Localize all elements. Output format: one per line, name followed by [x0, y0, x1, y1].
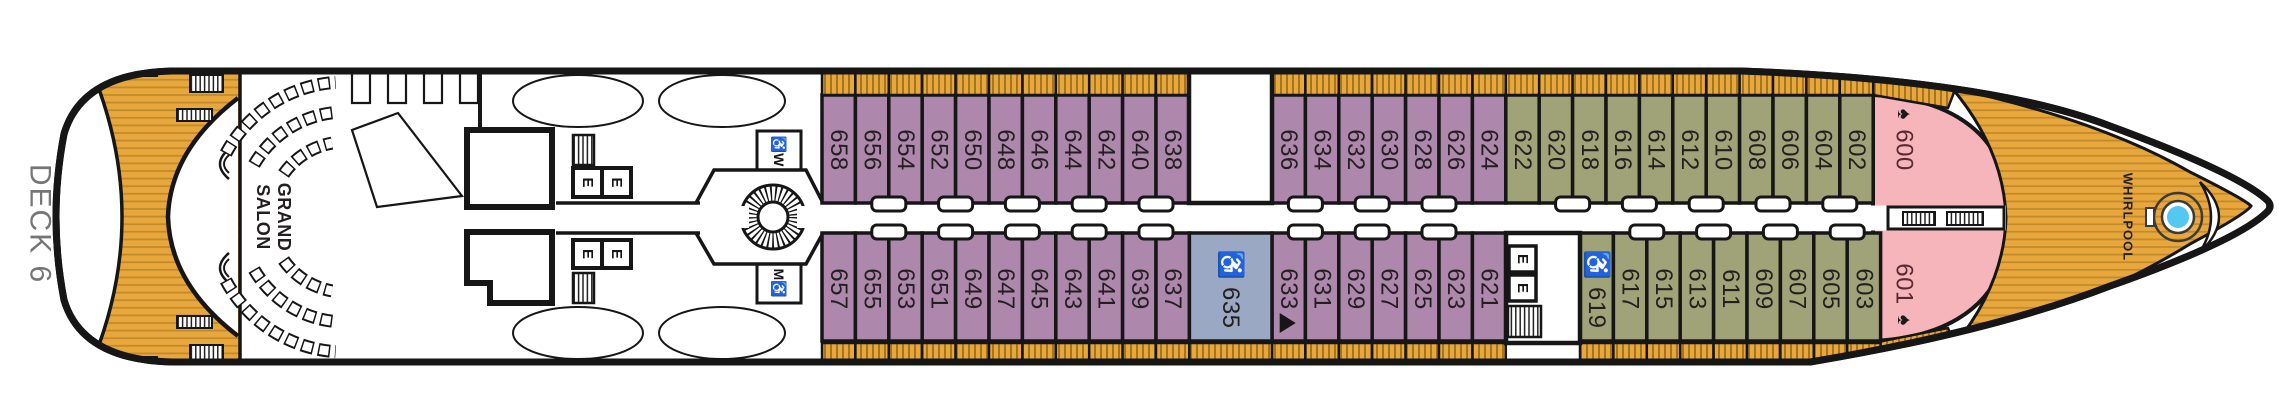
- lifeboat: [659, 307, 785, 359]
- cabin-number: 632: [1342, 129, 1369, 171]
- lifeboat: [659, 75, 785, 127]
- elevator-label: E: [1514, 283, 1531, 293]
- cabin-number: 655: [859, 268, 886, 310]
- cabin-veranda: [1089, 72, 1122, 95]
- cabin-604[interactable]: 604: [1806, 72, 1839, 203]
- lifeboat: [513, 75, 643, 127]
- cabin-number: 657: [825, 268, 852, 310]
- cabin-640[interactable]: 640: [1123, 72, 1156, 203]
- cabin-number: 601: [1891, 263, 1918, 305]
- cabin-door-alcove: [872, 225, 906, 239]
- cabin-635[interactable]: ♿ 635: [1189, 233, 1272, 366]
- cabin-number: 640: [1126, 129, 1153, 171]
- cabin-653[interactable]: 653: [889, 233, 922, 366]
- cabin-number: 636: [1275, 129, 1302, 171]
- cabin-door-alcove: [1622, 197, 1656, 211]
- cabin-door-alcove: [872, 197, 906, 211]
- cabin-door-alcove: [939, 197, 973, 211]
- cabin-618[interactable]: 618: [1573, 72, 1606, 203]
- stairs-icon: [573, 273, 594, 303]
- cabin-door-alcove: [1422, 225, 1456, 239]
- cabin-number: 624: [1476, 129, 1503, 171]
- elevator-label: E: [608, 177, 625, 187]
- cabin-603[interactable]: 603: [1847, 233, 1880, 366]
- cabin-veranda: [922, 72, 955, 95]
- cabin-637[interactable]: 637: [1156, 233, 1189, 366]
- cabin-number: 646: [1026, 129, 1053, 171]
- cabin-number: 654: [892, 129, 919, 171]
- cabin-veranda: [889, 72, 922, 95]
- stairs-icon: [177, 316, 212, 328]
- cabin-door-alcove: [1355, 225, 1389, 239]
- cabin-number: 628: [1409, 129, 1436, 171]
- cabin-veranda: [822, 72, 855, 95]
- cabin-door-alcove: [1005, 197, 1039, 211]
- cabin-door-alcove: [1556, 197, 1590, 211]
- stairs-icon: [1508, 306, 1541, 337]
- cabin-658[interactable]: 658: [822, 72, 855, 203]
- cabin-number: 653: [892, 268, 919, 310]
- cabin-veranda: [1056, 72, 1089, 95]
- cabin-629[interactable]: 629: [1339, 233, 1372, 366]
- cabin-number: 643: [1059, 268, 1086, 310]
- cabin-number: 644: [1059, 129, 1086, 171]
- cabin-veranda: [956, 72, 989, 95]
- cabin-number: ♿ 619: [1583, 249, 1611, 328]
- cabin-number: 623: [1442, 268, 1469, 310]
- cabin-627[interactable]: 627: [1372, 233, 1405, 366]
- cabin-door-alcove: [1288, 197, 1322, 211]
- cabin-651[interactable]: 651: [922, 233, 955, 366]
- cabin-610[interactable]: 610: [1706, 72, 1739, 203]
- cabin-number: 651: [925, 268, 952, 310]
- cabin-623[interactable]: 623: [1439, 233, 1472, 366]
- cabin-652[interactable]: 652: [922, 72, 955, 203]
- cabin-number: 610: [1709, 129, 1736, 171]
- cabin-number: 630: [1375, 129, 1402, 171]
- cabin-veranda: [1472, 72, 1505, 95]
- cabin-door-alcove: [1830, 225, 1864, 239]
- cabin-number: 641: [1092, 268, 1119, 310]
- cabin-number: 626: [1442, 129, 1469, 171]
- cabin-633[interactable]: 633: [1272, 233, 1305, 366]
- cabin-number: 612: [1676, 129, 1703, 171]
- stairs-icon: [1947, 212, 1983, 225]
- cabin-614[interactable]: 614: [1639, 72, 1672, 203]
- cabin-641[interactable]: 641: [1089, 233, 1122, 366]
- cabin-number: 617: [1617, 268, 1644, 310]
- cabin-veranda: [1439, 72, 1472, 95]
- cabin-642[interactable]: 642: [1089, 72, 1122, 203]
- deck-plan-page: GRAND SALON E E E E ♿W M♿: [0, 0, 2285, 401]
- cabin-number: 621: [1476, 268, 1503, 310]
- cabin-615[interactable]: 615: [1647, 233, 1680, 366]
- cabin-646[interactable]: 646: [1022, 72, 1055, 203]
- cabin-608[interactable]: 608: [1740, 72, 1773, 203]
- cabin-door-alcove: [1697, 225, 1731, 239]
- cabin-630[interactable]: 630: [1372, 72, 1405, 203]
- cabin-number: 633: [1275, 268, 1302, 310]
- cabin-number: 613: [1683, 268, 1710, 310]
- cabin-number: 608: [1743, 129, 1770, 171]
- cabin-620[interactable]: 620: [1539, 72, 1572, 203]
- cabin-veranda: [1639, 72, 1672, 95]
- elevator-label: E: [579, 249, 596, 259]
- cabin-door-alcove: [1823, 197, 1857, 211]
- cabin-609[interactable]: 609: [1747, 233, 1780, 366]
- restroom-men-label: M♿: [770, 268, 787, 297]
- cabin-611[interactable]: 611: [1714, 233, 1747, 366]
- cabin-number: 616: [1609, 129, 1636, 171]
- cabin-626[interactable]: 626: [1439, 72, 1472, 203]
- cabin-602[interactable]: 602: [1840, 72, 1873, 203]
- cabin-door-alcove: [1422, 197, 1456, 211]
- elevator-label: E: [1514, 254, 1531, 264]
- cabin-624[interactable]: 624: [1472, 72, 1505, 203]
- cabin-number: 627: [1375, 268, 1402, 310]
- grand-salon-label: GRAND SALON: [253, 183, 294, 252]
- deck-plan-svg: GRAND SALON E E E E ♿W M♿: [0, 0, 2285, 401]
- cabin-number: 649: [959, 268, 986, 310]
- cabin-616[interactable]: 616: [1606, 72, 1639, 203]
- cabin-number: 637: [1159, 268, 1186, 310]
- cabin-649[interactable]: 649: [956, 233, 989, 366]
- cabin-door-alcove: [1756, 197, 1790, 211]
- cabin-number: 620: [1542, 129, 1569, 171]
- cabin-628[interactable]: 628: [1406, 72, 1439, 203]
- cabin-number: 634: [1309, 129, 1336, 171]
- cabin-625[interactable]: 625: [1406, 233, 1439, 366]
- cabin-number: 615: [1650, 268, 1677, 310]
- cabin-612[interactable]: 612: [1673, 72, 1706, 203]
- cabin-veranda: [855, 72, 888, 95]
- cabin-654[interactable]: 654: [889, 72, 922, 203]
- cabin-634[interactable]: 634: [1305, 72, 1338, 203]
- cabin-door-alcove: [1072, 197, 1106, 211]
- cabin-door-alcove: [1139, 225, 1173, 239]
- cabin-veranda: [989, 72, 1022, 95]
- cabin-veranda: [1123, 72, 1156, 95]
- deck-title: DECK 6: [24, 164, 57, 284]
- cabin-veranda: [1406, 72, 1439, 95]
- spiral-stair: [739, 185, 807, 249]
- whirlpool-label: WHIRLPOOL: [2121, 173, 2136, 261]
- cabin-656[interactable]: 656: [855, 72, 888, 203]
- cabin-number: 629: [1342, 268, 1369, 310]
- cabin-veranda: [1022, 72, 1055, 95]
- spade-icon: ♠: [1893, 109, 1915, 120]
- cabin-door-alcove: [939, 225, 973, 239]
- cabin-619[interactable]: ♿ 619: [1580, 233, 1613, 366]
- cabin-door-alcove: [1139, 197, 1173, 211]
- cabin-number: 648: [992, 129, 1019, 171]
- whirlpool-water: [2167, 206, 2189, 228]
- cabin-veranda: [1506, 72, 1539, 95]
- cabin-636[interactable]: 636: [1272, 72, 1305, 203]
- cabin-number: 607: [1784, 268, 1811, 310]
- cabin-631[interactable]: 631: [1305, 233, 1338, 366]
- cabin-639[interactable]: 639: [1123, 233, 1156, 366]
- stairs-icon: [177, 109, 212, 121]
- cabin-607[interactable]: 607: [1780, 233, 1813, 366]
- spade-icon: ♠: [1893, 315, 1915, 326]
- cabin-door-alcove: [1689, 197, 1723, 211]
- cabin-601[interactable]: 601♠: [1891, 263, 1918, 325]
- cabin-number: 605: [1817, 268, 1844, 310]
- cabin-number: 631: [1309, 268, 1336, 310]
- stairs-icon: [190, 75, 223, 92]
- cabin-veranda: [1673, 72, 1706, 95]
- cabin-657[interactable]: 657: [822, 233, 855, 366]
- elevator-label: E: [579, 177, 596, 187]
- cabin-number: 606: [1776, 129, 1803, 171]
- elevator-label: E: [608, 249, 625, 259]
- cabin-veranda: [1156, 72, 1189, 95]
- cabin-door-alcove: [1763, 225, 1797, 239]
- cabin-number: 614: [1643, 129, 1670, 171]
- cabin-number: 652: [925, 129, 952, 171]
- cabin-door-alcove: [1005, 225, 1039, 239]
- cabin-number: 611: [1717, 269, 1744, 309]
- grand-salon-line1: GRAND: [274, 183, 294, 252]
- cabin-650[interactable]: 650: [956, 72, 989, 203]
- cabin-door-alcove: [1288, 225, 1322, 239]
- central-lobby: [1189, 69, 1272, 203]
- cabin-number: 600: [1891, 129, 1918, 171]
- cabin-veranda: [1339, 72, 1372, 95]
- cabin-door-alcove: [1072, 225, 1106, 239]
- cabin-number: 622: [1509, 129, 1536, 171]
- cabin-645[interactable]: 645: [1022, 233, 1055, 366]
- stairs-icon: [573, 135, 594, 165]
- cabin-veranda: [1305, 72, 1338, 95]
- cabin-600[interactable]: 600♠: [1891, 109, 1918, 171]
- cabin-number: ♿ 635: [1217, 249, 1245, 328]
- cabin-621[interactable]: 621: [1472, 233, 1505, 366]
- cabin-number: 618: [1576, 129, 1603, 171]
- cabin-number: 609: [1750, 268, 1777, 310]
- cabin-622[interactable]: 622: [1506, 72, 1539, 203]
- cabin-number: 639: [1126, 268, 1153, 310]
- cabin-number: 658: [825, 129, 852, 171]
- cabin-door-alcove: [1630, 225, 1664, 239]
- cabin-number: 647: [992, 268, 1019, 310]
- midship-room: [467, 130, 552, 207]
- cabin-number: 602: [1843, 129, 1870, 171]
- restroom-women-label: ♿W: [770, 136, 787, 167]
- cabin-632[interactable]: 632: [1339, 72, 1372, 203]
- cabin-605[interactable]: 605: [1814, 233, 1847, 366]
- cabin-655[interactable]: 655: [855, 233, 888, 366]
- cabin-veranda: [1706, 72, 1739, 95]
- cabin-number: 603: [1850, 268, 1877, 310]
- cabin-number: 650: [959, 129, 986, 171]
- cabin-veranda: [1539, 72, 1572, 95]
- cabin-veranda: [1272, 72, 1305, 95]
- cabin-638[interactable]: 638: [1156, 72, 1189, 203]
- cabin-number: 656: [859, 129, 886, 171]
- cabin-647[interactable]: 647: [989, 233, 1022, 366]
- cabin-veranda: [1573, 72, 1606, 95]
- cabin-644[interactable]: 644: [1056, 72, 1089, 203]
- cabin-number: 604: [1810, 129, 1837, 171]
- cabin-veranda: [1372, 72, 1405, 95]
- cabin-number: 642: [1092, 129, 1119, 171]
- cabin-613[interactable]: 613: [1680, 233, 1713, 366]
- cabin-643[interactable]: 643: [1056, 233, 1089, 366]
- cabin-number: 638: [1159, 129, 1186, 171]
- stairs-icon: [1903, 212, 1935, 225]
- cabin-648[interactable]: 648: [989, 72, 1022, 203]
- cabin-veranda: [1606, 72, 1639, 95]
- cabin-door-alcove: [1355, 197, 1389, 211]
- cabin-number: 625: [1409, 268, 1436, 310]
- grand-salon-line2: SALON: [253, 184, 273, 250]
- lifeboat: [513, 307, 643, 359]
- cabin-606[interactable]: 606: [1773, 72, 1806, 203]
- cabin-number: 645: [1026, 268, 1053, 310]
- cabin-617[interactable]: 617: [1613, 233, 1646, 366]
